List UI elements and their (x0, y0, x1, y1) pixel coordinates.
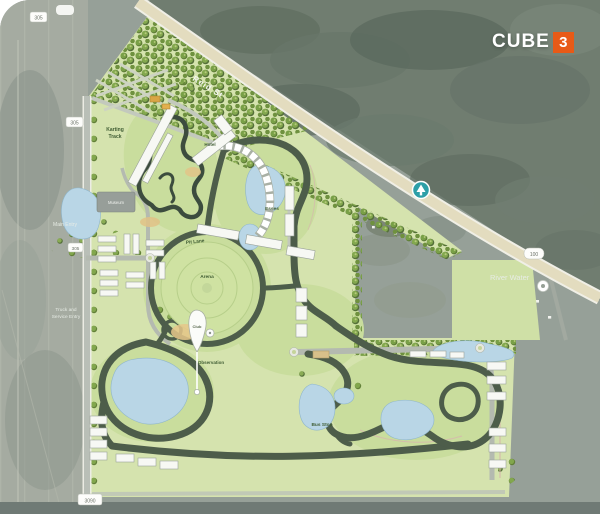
label-truck-entry-2: Service Entry (52, 314, 81, 320)
arena (161, 242, 253, 334)
route-marker-highway: 100 (524, 248, 544, 259)
road-label-pill (56, 5, 74, 15)
label-arena: Arena (200, 274, 214, 280)
cube3-logo: CUBE 3 (492, 31, 574, 53)
svg-text:3090: 3090 (84, 499, 95, 505)
label-river-water: River Water (490, 273, 530, 282)
label-karting-1: Karting (106, 127, 124, 133)
label-main-entry: Main Entry (53, 222, 77, 228)
cube3-logo-text: CUBE (492, 31, 550, 53)
svg-text:305: 305 (70, 121, 79, 127)
svg-text:100: 100 (530, 252, 539, 258)
label-bus-stop: Bus Stop (311, 422, 332, 428)
video-frame: Reid St River Water Main Entry Truck and… (0, 0, 600, 514)
svg-text:305: 305 (34, 16, 43, 22)
label-truck-entry-1: Truck and (55, 307, 76, 313)
label-museum: Museum (108, 200, 125, 205)
cube3-logo-badge: 3 (553, 32, 574, 53)
label-club: Club (193, 324, 202, 329)
site-plan-rendering: Reid St River Water Main Entry Truck and… (0, 0, 600, 514)
site-plan-map: Reid St River Water Main Entry Truck and… (0, 0, 600, 514)
label-observation: Observation (198, 360, 225, 365)
route-marker-left-lower: 305 (68, 243, 83, 252)
poi-circle-icon (538, 281, 549, 292)
park-poi-icon (413, 182, 430, 199)
svg-text:305: 305 (72, 246, 80, 251)
route-marker-top-left: 305 (30, 12, 47, 22)
route-marker-bottom: 3090 (78, 494, 102, 505)
label-esses: Esses (265, 206, 279, 212)
route-marker-left-mid: 305 (66, 117, 83, 127)
label-hotel: Hotel (204, 142, 215, 147)
label-karting-2: Track (108, 134, 121, 140)
